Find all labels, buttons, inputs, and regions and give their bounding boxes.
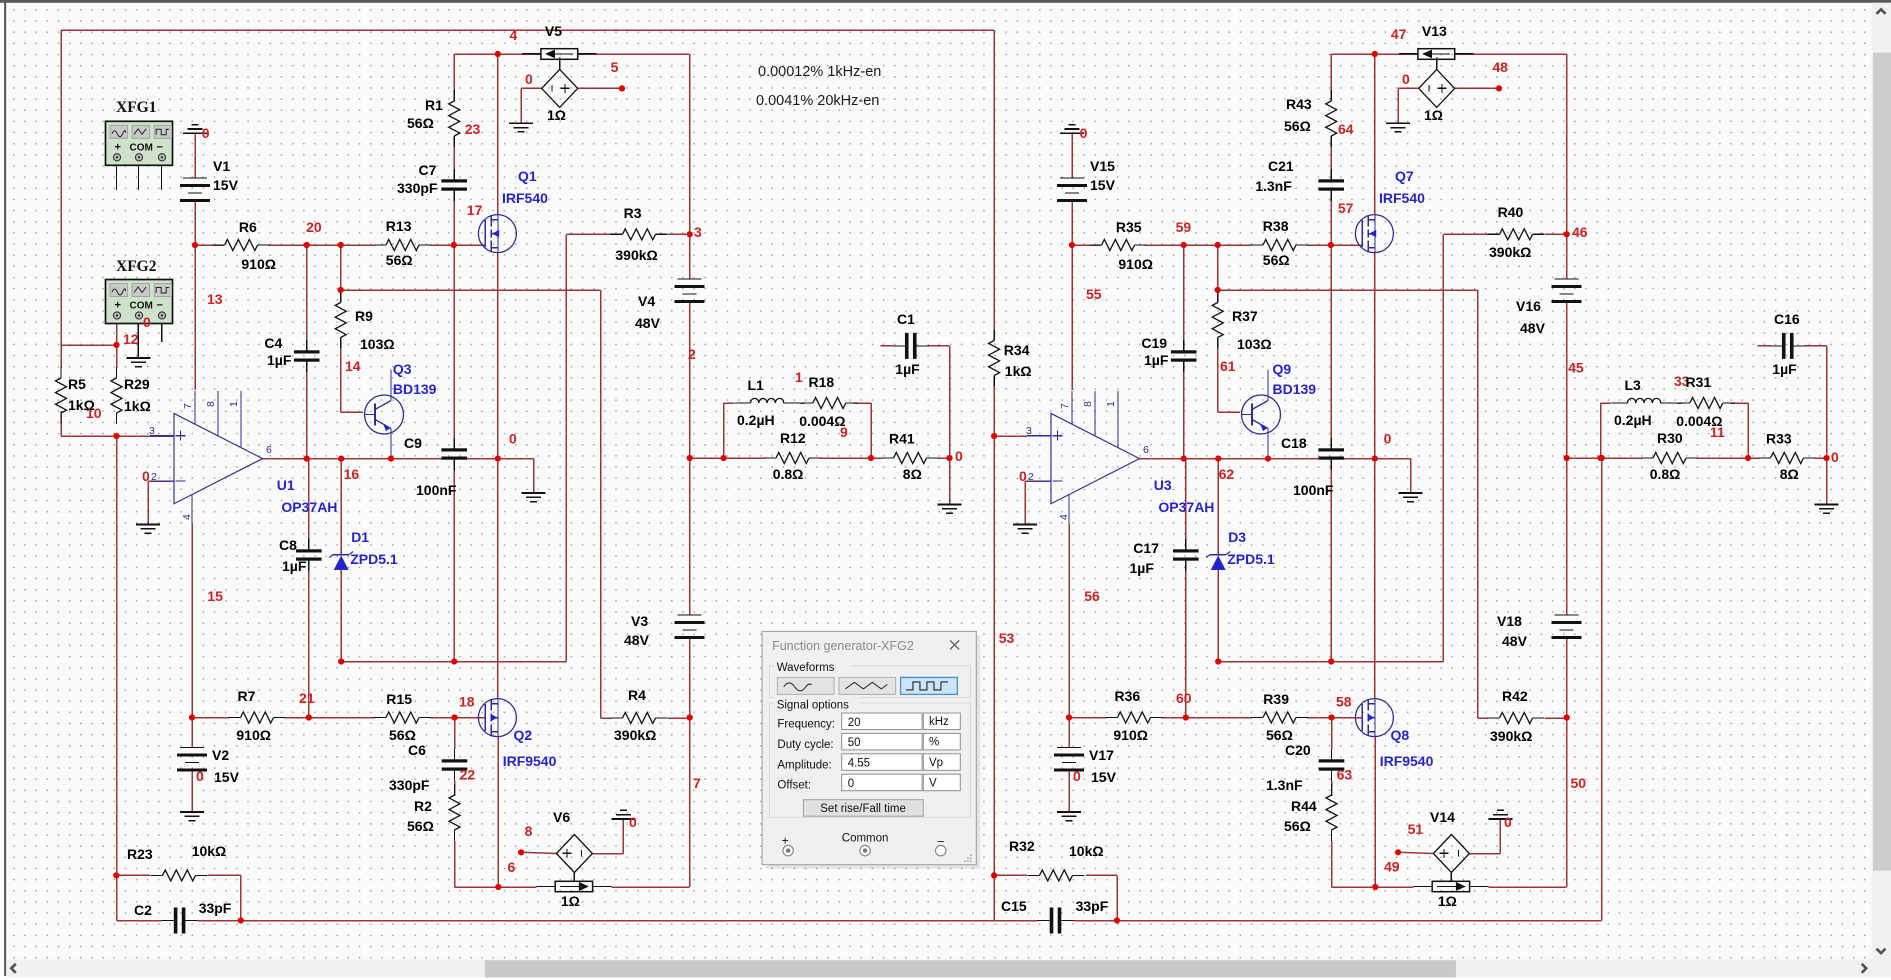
svg-text:V15: V15: [1090, 158, 1115, 174]
svg-text:0: 0: [196, 768, 204, 784]
svg-text:0: 0: [1019, 468, 1027, 484]
svg-text:7: 7: [693, 775, 701, 791]
svg-text:56Ω: 56Ω: [407, 115, 434, 131]
svg-text:R9: R9: [355, 308, 373, 324]
svg-text:1kΩ: 1kΩ: [68, 397, 95, 413]
svg-text:−: −: [157, 141, 163, 153]
svg-text:390kΩ: 390kΩ: [615, 247, 657, 263]
svg-text:56Ω: 56Ω: [1263, 252, 1290, 268]
svg-text:100nF: 100nF: [1293, 482, 1334, 498]
svg-text:14: 14: [345, 358, 361, 374]
svg-text:56Ω: 56Ω: [1284, 818, 1311, 834]
svg-text:910Ω: 910Ω: [1113, 727, 1148, 743]
svg-text:%: %: [929, 737, 939, 749]
svg-text:R32: R32: [1009, 838, 1035, 854]
svg-text:0: 0: [1402, 71, 1410, 87]
svg-text:4: 4: [1058, 514, 1070, 520]
svg-text:0: 0: [848, 778, 854, 790]
svg-text:21: 21: [299, 690, 315, 706]
svg-text:0: 0: [509, 431, 517, 447]
svg-text:C7: C7: [419, 162, 437, 178]
svg-text:55: 55: [1086, 286, 1102, 302]
svg-text:910Ω: 910Ω: [1118, 256, 1153, 272]
svg-text:1µF: 1µF: [1130, 560, 1155, 576]
svg-text:R3: R3: [624, 205, 642, 221]
svg-text:C15: C15: [1001, 898, 1027, 914]
svg-text:Duty cycle:: Duty cycle:: [777, 739, 833, 751]
svg-text:1: 1: [228, 401, 240, 407]
svg-text:C16: C16: [1774, 311, 1800, 327]
svg-text:0.004Ω: 0.004Ω: [799, 413, 845, 429]
svg-text:3: 3: [694, 224, 702, 240]
svg-text:C17: C17: [1133, 540, 1159, 556]
svg-text:0.8Ω: 0.8Ω: [1650, 466, 1681, 482]
svg-text:0.2µH: 0.2µH: [1614, 412, 1652, 428]
svg-text:Q1: Q1: [518, 168, 537, 184]
svg-text:Q2: Q2: [514, 727, 533, 743]
svg-text:0: 0: [1831, 449, 1839, 465]
svg-text:10kΩ: 10kΩ: [192, 843, 227, 859]
svg-text:IRF9540: IRF9540: [503, 753, 557, 769]
svg-text:0: 0: [629, 814, 637, 830]
svg-text:R34: R34: [1004, 342, 1030, 358]
svg-text:15V: 15V: [1090, 177, 1116, 193]
svg-text:910Ω: 910Ω: [236, 727, 271, 743]
svg-text:2: 2: [688, 346, 696, 362]
svg-text:330pF: 330pF: [389, 777, 430, 793]
svg-text:60: 60: [1176, 690, 1192, 706]
svg-text:0.00012% 1kHz-en: 0.00012% 1kHz-en: [758, 64, 881, 80]
svg-text:1Ω: 1Ω: [1438, 893, 1457, 909]
svg-text:61: 61: [1220, 358, 1236, 374]
svg-text:8: 8: [205, 401, 217, 407]
svg-text:IRF540: IRF540: [502, 190, 548, 206]
svg-text:0: 0: [202, 125, 210, 141]
svg-text:R36: R36: [1115, 688, 1141, 704]
svg-text:OP37AH: OP37AH: [281, 499, 337, 515]
svg-text:57: 57: [1338, 200, 1354, 216]
svg-text:XFG2: XFG2: [116, 258, 157, 275]
svg-text:0.2µH: 0.2µH: [737, 412, 775, 428]
svg-text:V5: V5: [545, 23, 562, 39]
svg-text:15V: 15V: [214, 769, 240, 785]
svg-text:1µF: 1µF: [282, 558, 307, 574]
svg-text:R12: R12: [780, 430, 806, 446]
svg-text:16: 16: [344, 466, 360, 482]
svg-text:−: −: [157, 300, 163, 312]
svg-text:1.3nF: 1.3nF: [1255, 178, 1292, 194]
svg-text:V4: V4: [638, 293, 655, 309]
svg-text:C20: C20: [1285, 742, 1311, 758]
svg-text:C2: C2: [134, 902, 152, 918]
svg-text:C8: C8: [279, 537, 297, 553]
svg-text:4.55: 4.55: [848, 758, 870, 770]
svg-text:C6: C6: [408, 742, 426, 758]
svg-text:1kΩ: 1kΩ: [1005, 363, 1032, 379]
svg-text:56Ω: 56Ω: [1266, 727, 1293, 743]
svg-text:Amplitude:: Amplitude:: [777, 759, 831, 771]
svg-text:V17: V17: [1089, 747, 1114, 763]
svg-text:0: 0: [1504, 814, 1512, 830]
svg-text:47: 47: [1391, 26, 1407, 42]
svg-text:18: 18: [459, 694, 475, 710]
svg-text:COM: COM: [130, 142, 153, 153]
svg-text:1µF: 1µF: [1772, 361, 1797, 377]
svg-text:48V: 48V: [624, 632, 650, 648]
svg-text:R5: R5: [68, 376, 86, 392]
svg-text:15V: 15V: [1091, 769, 1117, 785]
svg-text:15: 15: [207, 588, 223, 604]
svg-text:58: 58: [1336, 694, 1352, 710]
svg-text:R44: R44: [1291, 798, 1317, 814]
svg-text:R38: R38: [1263, 218, 1289, 234]
svg-text:R13: R13: [386, 218, 412, 234]
svg-text:20: 20: [848, 717, 861, 729]
svg-text:0: 0: [143, 314, 151, 330]
svg-text:C19: C19: [1141, 335, 1167, 351]
svg-text:V13: V13: [1422, 23, 1447, 39]
svg-text:0: 0: [1080, 125, 1088, 141]
svg-text:48: 48: [1492, 59, 1508, 75]
svg-text:103Ω: 103Ω: [1237, 336, 1272, 352]
svg-text:48V: 48V: [1520, 320, 1546, 336]
svg-text:0: 0: [1073, 768, 1081, 784]
svg-text:59: 59: [1176, 219, 1192, 235]
svg-text:Frequency:: Frequency:: [777, 719, 835, 731]
svg-text:0: 0: [525, 71, 533, 87]
svg-text:V1: V1: [213, 158, 230, 174]
svg-text:8: 8: [1082, 401, 1094, 407]
svg-text:1µF: 1µF: [267, 352, 292, 368]
svg-text:33pF: 33pF: [199, 900, 232, 916]
svg-text:0.0041% 20kHz-en: 0.0041% 20kHz-en: [756, 93, 879, 109]
svg-text:C9: C9: [404, 435, 422, 451]
svg-text:R4: R4: [628, 687, 646, 703]
svg-text:+: +: [115, 141, 121, 153]
svg-text:Set rise/Fall time: Set rise/Fall time: [820, 803, 906, 815]
svg-text:kHz: kHz: [929, 716, 949, 728]
svg-text:Q8: Q8: [1391, 727, 1410, 743]
svg-text:R29: R29: [124, 376, 150, 392]
svg-text:22: 22: [460, 767, 476, 783]
svg-text:3: 3: [149, 425, 155, 437]
svg-text:13: 13: [207, 291, 223, 307]
svg-text:R39: R39: [1263, 691, 1289, 707]
svg-text:Q3: Q3: [393, 361, 412, 377]
svg-text:6: 6: [508, 859, 516, 875]
svg-text:R6: R6: [239, 219, 257, 235]
svg-text:1Ω: 1Ω: [547, 107, 566, 123]
svg-text:53: 53: [999, 630, 1015, 646]
svg-text:45: 45: [1568, 360, 1584, 376]
svg-text:5: 5: [611, 59, 619, 75]
svg-text:COM: COM: [130, 301, 153, 312]
svg-text:1µF: 1µF: [1144, 352, 1169, 368]
svg-text:V6: V6: [553, 809, 570, 825]
svg-text:2: 2: [1028, 471, 1034, 483]
svg-text:1.3nF: 1.3nF: [1266, 777, 1303, 793]
svg-text:V18: V18: [1497, 613, 1522, 629]
svg-text:0: 0: [955, 448, 963, 464]
svg-text:0: 0: [1384, 431, 1392, 447]
svg-text:BD139: BD139: [393, 381, 437, 397]
svg-text:3: 3: [1026, 425, 1032, 437]
svg-text:+: +: [115, 300, 121, 312]
svg-text:56Ω: 56Ω: [389, 727, 416, 743]
svg-text:0: 0: [142, 468, 150, 484]
svg-text:4: 4: [181, 514, 193, 520]
svg-text:R35: R35: [1116, 219, 1142, 235]
svg-text:20: 20: [306, 219, 322, 235]
svg-text:XFG1: XFG1: [116, 99, 156, 116]
svg-text:R7: R7: [238, 688, 256, 704]
svg-text:Signal options: Signal options: [777, 699, 849, 711]
svg-text:6: 6: [266, 444, 272, 456]
svg-text:D3: D3: [1228, 529, 1246, 545]
svg-text:330pF: 330pF: [397, 180, 438, 196]
svg-text:56Ω: 56Ω: [386, 252, 413, 268]
svg-text:1: 1: [795, 369, 803, 385]
svg-text:390kΩ: 390kΩ: [1490, 728, 1532, 744]
svg-text:8Ω: 8Ω: [903, 466, 922, 482]
svg-text:63: 63: [1337, 767, 1353, 783]
svg-text:R41: R41: [889, 431, 915, 447]
svg-text:8: 8: [525, 823, 533, 839]
svg-text:62: 62: [1219, 466, 1235, 482]
svg-text:U3: U3: [1154, 477, 1172, 493]
svg-text:51: 51: [1408, 821, 1424, 837]
svg-text:390kΩ: 390kΩ: [1489, 244, 1531, 260]
svg-text:R15: R15: [386, 691, 412, 707]
svg-text:V14: V14: [1430, 809, 1455, 825]
svg-text:1Ω: 1Ω: [561, 893, 580, 909]
svg-text:56: 56: [1084, 588, 1100, 604]
svg-text:V16: V16: [1516, 298, 1541, 314]
svg-text:2: 2: [151, 471, 157, 483]
svg-text:Q7: Q7: [1395, 168, 1414, 184]
svg-text:100nF: 100nF: [416, 482, 457, 498]
svg-text:R40: R40: [1498, 204, 1524, 220]
svg-text:R33: R33: [1766, 431, 1792, 447]
svg-text:390kΩ: 390kΩ: [614, 727, 656, 743]
svg-text:7: 7: [182, 403, 194, 409]
svg-text:15V: 15V: [213, 177, 239, 193]
svg-text:1kΩ: 1kΩ: [124, 398, 151, 414]
svg-text:7: 7: [1059, 403, 1071, 409]
svg-text:R23: R23: [127, 846, 153, 862]
svg-text:D1: D1: [351, 529, 369, 545]
svg-text:C1: C1: [897, 311, 915, 327]
svg-text:R31: R31: [1686, 374, 1712, 390]
svg-text:R42: R42: [1502, 688, 1528, 704]
svg-text:U1: U1: [277, 477, 295, 493]
svg-text:Offset:: Offset:: [777, 780, 811, 792]
svg-text:6: 6: [1143, 444, 1149, 456]
svg-text:R2: R2: [414, 798, 432, 814]
svg-text:0.004Ω: 0.004Ω: [1676, 413, 1722, 429]
svg-text:R30: R30: [1657, 430, 1683, 446]
svg-text:48V: 48V: [1502, 633, 1528, 649]
svg-text:103Ω: 103Ω: [360, 336, 395, 352]
svg-text:V2: V2: [212, 747, 229, 763]
svg-text:ZPD5.1: ZPD5.1: [1227, 551, 1275, 567]
svg-text:C21: C21: [1268, 158, 1294, 174]
svg-text:910Ω: 910Ω: [241, 256, 276, 272]
svg-text:48V: 48V: [635, 315, 661, 331]
svg-text:Waveforms: Waveforms: [777, 662, 835, 674]
svg-text:IRF9540: IRF9540: [1380, 753, 1434, 769]
svg-text:Q9: Q9: [1273, 361, 1292, 377]
svg-text:0.8Ω: 0.8Ω: [773, 466, 804, 482]
svg-text:Common: Common: [842, 832, 889, 844]
svg-text:R1: R1: [425, 97, 443, 113]
svg-text:C4: C4: [264, 335, 282, 351]
svg-text:ZPD5.1: ZPD5.1: [350, 551, 398, 567]
svg-text:OP37AH: OP37AH: [1158, 499, 1214, 515]
svg-text:56Ω: 56Ω: [1284, 118, 1311, 134]
svg-text:L3: L3: [1625, 377, 1642, 393]
svg-text:Vp: Vp: [929, 757, 943, 769]
svg-text:8Ω: 8Ω: [1780, 466, 1799, 482]
svg-text:56Ω: 56Ω: [407, 818, 434, 834]
svg-text:V3: V3: [631, 613, 648, 629]
svg-text:1µF: 1µF: [895, 361, 920, 377]
svg-text:33pF: 33pF: [1076, 898, 1109, 914]
svg-text:4: 4: [510, 27, 518, 43]
svg-text:IRF540: IRF540: [1379, 190, 1425, 206]
svg-text:R43: R43: [1286, 96, 1312, 112]
svg-text:64: 64: [1338, 121, 1354, 137]
svg-text:10kΩ: 10kΩ: [1069, 843, 1104, 859]
svg-text:V: V: [929, 777, 937, 789]
svg-text:Function generator-XFG2: Function generator-XFG2: [772, 639, 914, 653]
svg-text:BD139: BD139: [1273, 381, 1317, 397]
svg-text:12: 12: [123, 331, 139, 347]
svg-text:1Ω: 1Ω: [1424, 107, 1443, 123]
svg-text:49: 49: [1384, 858, 1400, 874]
svg-text:23: 23: [465, 121, 481, 137]
svg-text:46: 46: [1572, 224, 1588, 240]
svg-text:50: 50: [848, 737, 861, 749]
svg-text:R18: R18: [809, 374, 835, 390]
svg-text:50: 50: [1571, 775, 1587, 791]
svg-text:17: 17: [467, 202, 483, 218]
svg-text:R37: R37: [1232, 308, 1258, 324]
svg-text:1: 1: [1105, 401, 1117, 407]
svg-text:L1: L1: [748, 377, 765, 393]
svg-text:C18: C18: [1281, 435, 1307, 451]
